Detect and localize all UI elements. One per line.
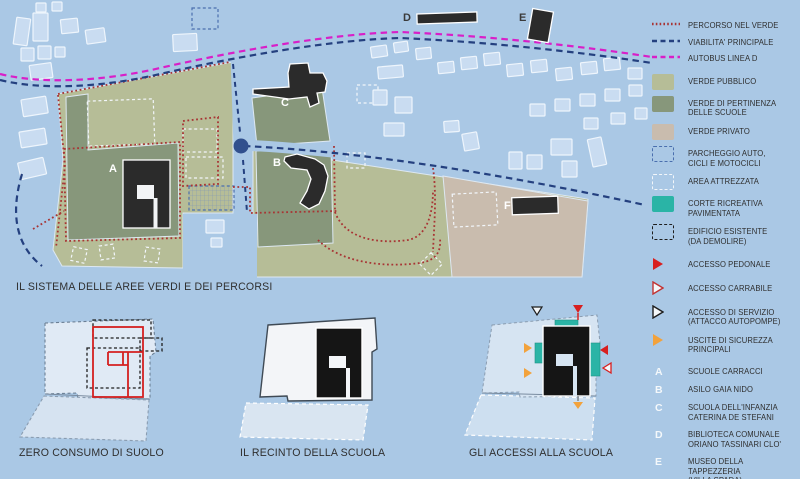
diagram-recinto	[230, 300, 430, 450]
edificio-esistente-swatch	[652, 224, 688, 240]
corte-ricreativa-swatch	[652, 196, 688, 212]
accesso-pedonale-right-marker	[600, 345, 608, 355]
legend-item-corte: CORTE RICREATIVA PAVIMENTATA	[652, 196, 798, 218]
legend-place-d: D BIBLIOTECA COMUNALE ORIANO TASSINARI C…	[652, 428, 798, 449]
autobus-line-swatch	[652, 52, 688, 60]
legend-label: VERDE PRIVATO	[688, 124, 750, 137]
legend-label: VERDE DI PERTINENZA DELLE SCUOLE	[688, 96, 776, 118]
legend-item-verde-scuole: VERDE DI PERTINENZA DELLE SCUOLE	[652, 96, 798, 118]
place-key: E	[652, 455, 688, 467]
accesso-servizio-icon	[652, 305, 688, 319]
legend-label: USCITE DI SICUREZZA PRINCIPALI	[688, 333, 773, 355]
legend-place-c: C SCUOLA DELL'INFANZIA CATERINA DE STEFA…	[652, 401, 798, 422]
place-key: B	[652, 383, 688, 395]
legend-item-area-attrezzata: AREA ATTREZZATA	[652, 174, 798, 190]
label-building-f: F	[504, 200, 511, 212]
legend-place-e: E MUSEO DELLA TAPPEZZERIA (VILLA SPADA)	[652, 455, 798, 479]
legend-label: AREA ATTREZZATA	[688, 174, 759, 187]
legend: PERCORSO NEL VERDE VIABILITA' PRINCIPALE…	[652, 19, 798, 479]
parcheggio-swatch	[652, 146, 688, 162]
parcel-lower	[240, 403, 368, 440]
caption-accessi: GLI ACCESSI ALLA SCUOLA	[469, 447, 613, 459]
accesso-carrabile-marker	[603, 363, 611, 373]
building-d	[417, 12, 477, 24]
label-building-c: C	[281, 97, 289, 109]
place-label: MUSEO DELLA TAPPEZZERIA (VILLA SPADA)	[688, 455, 789, 479]
map-title: IL SISTEMA DELLE AREE VERDI E DEI PERCOR…	[16, 281, 273, 293]
legend-item-accesso-pedonale: ACCESSO PEDONALE	[652, 257, 798, 271]
legend-item-parcheggio: PARCHEGGIO AUTO, CICLI E MOTOCICLI	[652, 146, 798, 168]
uscite-sicurezza-icon	[652, 333, 688, 347]
place-key: A	[652, 365, 688, 377]
map-canvas: A B C D E F	[0, 0, 655, 300]
area-attrezzata-swatch	[652, 174, 688, 190]
legend-label: VIABILITA' PRINCIPALE	[688, 36, 773, 48]
legend-place-a: A SCUOLE CARRACCI	[652, 365, 798, 377]
building-e	[527, 8, 553, 42]
place-label: BIBLIOTECA COMUNALE ORIANO TASSINARI CLO…	[688, 428, 781, 449]
accesso-servizio-marker	[532, 307, 542, 315]
verde-pubblico-swatch	[652, 74, 688, 90]
legend-item-uscite-sicurezza: USCITE DI SICUREZZA PRINCIPALI	[652, 333, 798, 355]
caption-recinto: IL RECINTO DELLA SCUOLA	[240, 447, 385, 459]
roundabout	[234, 139, 249, 154]
legend-label: ACCESSO PEDONALE	[688, 257, 770, 270]
diagram-accessi	[460, 293, 660, 450]
caption-zero-consumo: ZERO CONSUMO DI SUOLO	[19, 447, 164, 459]
percorso-line-swatch	[652, 19, 688, 27]
school-building	[543, 326, 590, 396]
accesso-pedonale-top-marker	[573, 305, 583, 313]
accesso-carrabile-icon	[652, 281, 688, 295]
viabilita-line-swatch	[652, 36, 688, 44]
legend-item-autobus: AUTOBUS LINEA D	[652, 52, 798, 64]
legend-item-accesso-carrabile: ACCESSO CARRABILE	[652, 281, 798, 295]
legend-item-edificio-esistente: EDIFICIO ESISTENTE (DA DEMOLIRE)	[652, 224, 798, 246]
place-label: ASILO GAIA NIDO	[688, 383, 753, 395]
building-f	[512, 196, 559, 215]
school-building	[316, 328, 362, 398]
place-label: SCUOLE CARRACCI	[688, 365, 763, 377]
legend-label: PERCORSO NEL VERDE	[688, 19, 778, 31]
parcel-lower	[465, 395, 595, 440]
legend-label: EDIFICIO ESISTENTE (DA DEMOLIRE)	[688, 224, 767, 246]
diagram-zero-consumo	[10, 300, 220, 450]
legend-place-b: B ASILO GAIA NIDO	[652, 383, 798, 395]
place-key: D	[652, 428, 688, 440]
legend-item-verde-privato: VERDE PRIVATO	[652, 124, 798, 140]
legend-label: AUTOBUS LINEA D	[688, 52, 758, 64]
parcel-lower	[20, 396, 149, 441]
legend-label: ACCESSO CARRABILE	[688, 281, 772, 294]
verde-privato-swatch	[652, 124, 688, 140]
label-building-d: D	[403, 12, 411, 24]
label-building-a: A	[109, 163, 117, 175]
accesso-pedonale-icon	[652, 257, 688, 271]
legend-item-viabilita: VIABILITA' PRINCIPALE	[652, 36, 798, 48]
legend-label: VERDE PUBBLICO	[688, 74, 756, 87]
place-key: C	[652, 401, 688, 413]
place-label: SCUOLA DELL'INFANZIA CATERINA DE STEFANI	[688, 401, 778, 422]
label-building-e: E	[519, 12, 526, 24]
legend-item-percorso: PERCORSO NEL VERDE	[652, 19, 798, 31]
legend-label: PARCHEGGIO AUTO, CICLI E MOTOCICLI	[688, 146, 766, 168]
label-building-b: B	[273, 157, 281, 169]
legend-label: ACCESSO DI SERVIZIO (ATTACCO AUTOPOMPE)	[688, 305, 781, 327]
site-plan-board: A B C D E F IL SISTEMA DELLE AREE VERDI …	[0, 0, 800, 479]
legend-item-accesso-servizio: ACCESSO DI SERVIZIO (ATTACCO AUTOPOMPE)	[652, 305, 798, 327]
building-a	[123, 160, 170, 228]
verde-scuole-swatch	[652, 96, 688, 112]
legend-item-verde-pubblico: VERDE PUBBLICO	[652, 74, 798, 90]
legend-label: CORTE RICREATIVA PAVIMENTATA	[688, 196, 763, 218]
